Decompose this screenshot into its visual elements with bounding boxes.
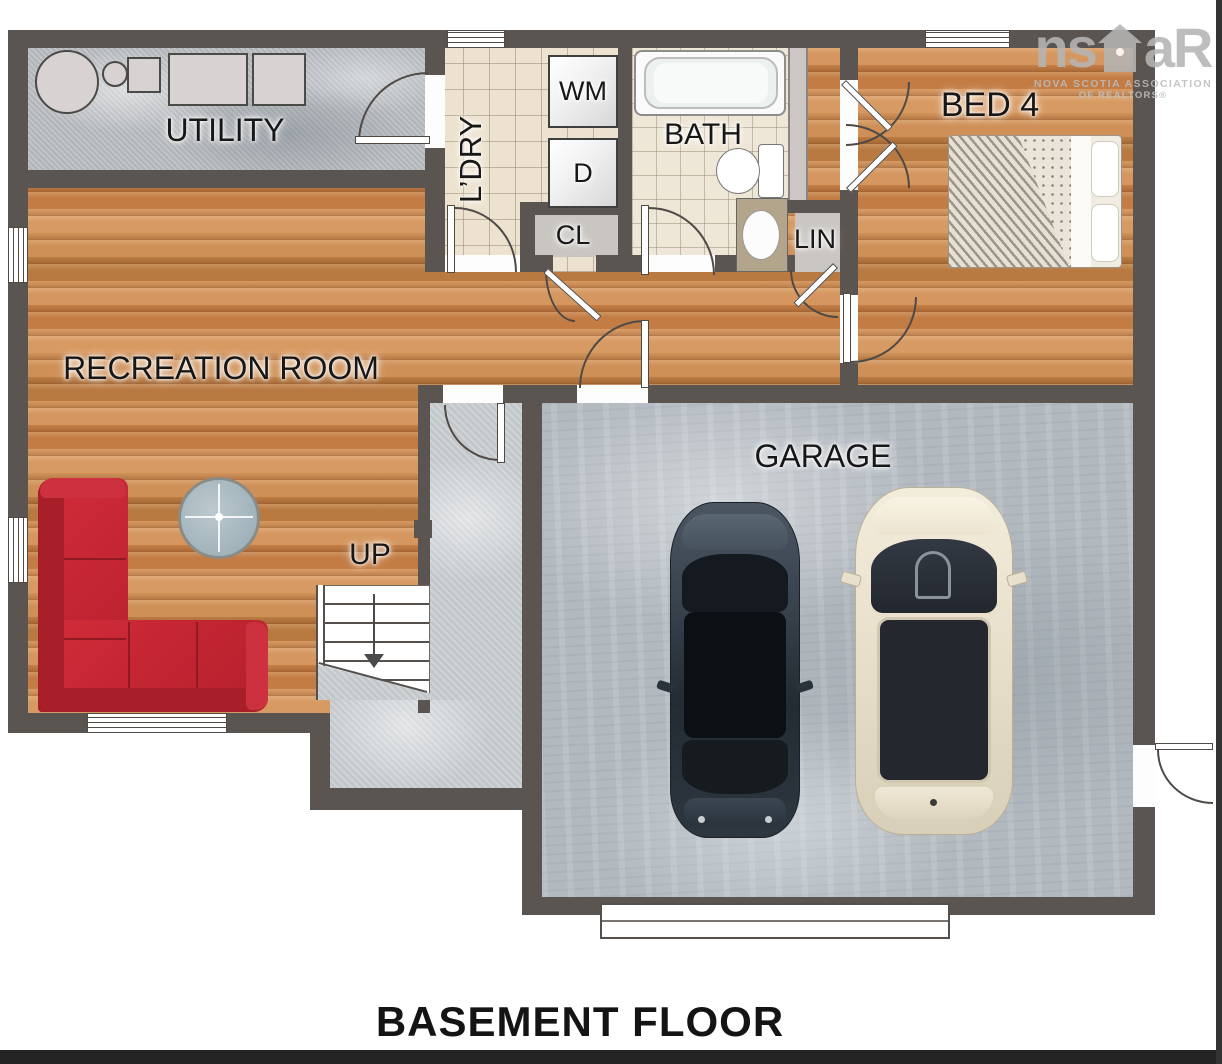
window xyxy=(447,30,505,48)
wall-laundry-bath xyxy=(618,48,632,272)
window xyxy=(87,713,227,733)
pillow xyxy=(1091,204,1119,262)
door-leaf xyxy=(497,403,505,463)
table-center xyxy=(215,513,223,521)
wall-stub xyxy=(414,520,432,538)
door-threshold xyxy=(1133,745,1155,807)
car-sedan xyxy=(670,502,800,838)
window xyxy=(925,30,1010,48)
door-threshold xyxy=(443,385,503,403)
coffee-table xyxy=(178,477,260,559)
window xyxy=(8,517,28,583)
car-sedan-headlight xyxy=(698,816,705,823)
car-sedan-rear-glass xyxy=(682,740,788,794)
sofa-back-bottom xyxy=(38,688,268,712)
wall-lin-top xyxy=(788,200,840,213)
sofa-armrest xyxy=(40,478,126,498)
wall-hall-bottom-b xyxy=(503,385,577,403)
sofa-back-left xyxy=(38,478,64,712)
door-swing xyxy=(1157,750,1213,804)
logo-subline-2: OF REALTORS® xyxy=(1028,90,1218,101)
bathtub xyxy=(634,50,786,116)
wall-utility-divider-b xyxy=(425,148,445,272)
car-suv-roof-glass xyxy=(877,617,991,783)
vanity xyxy=(736,198,788,272)
logo-text-ns: ns xyxy=(1035,22,1096,74)
window xyxy=(8,227,28,283)
room-garage xyxy=(542,403,1133,897)
car-suv-arch-icon xyxy=(915,551,951,599)
right-edge-bar xyxy=(1216,0,1222,1064)
logo-subline-1: NOVA SCOTIA ASSOCIATION xyxy=(1028,78,1218,90)
bathtub-basin xyxy=(654,63,768,103)
pillow xyxy=(1091,141,1119,197)
closet-label: CL xyxy=(543,220,603,251)
toilet-tank xyxy=(758,144,784,198)
bath-label: BATH xyxy=(648,118,758,152)
dryer-label: D xyxy=(573,158,593,189)
up-label: UP xyxy=(344,538,396,572)
wall-utility-bottom xyxy=(28,170,425,188)
door-leaf xyxy=(641,320,649,388)
page-title: BASEMENT FLOOR xyxy=(300,998,860,1046)
floor-plan-canvas: WM D xyxy=(0,0,1222,1064)
sink xyxy=(742,210,780,260)
stairs-arrow-shaft xyxy=(373,594,375,656)
bed-sheet-fold xyxy=(1071,136,1091,267)
wall-corridor-bottom xyxy=(310,788,542,810)
recreation-label: RECREATION ROOM xyxy=(46,350,396,387)
wall-garage-left xyxy=(522,385,542,915)
car-suv-hood xyxy=(873,497,995,535)
car-sedan-windshield xyxy=(682,554,788,612)
garage-door xyxy=(600,903,950,939)
bottom-bar xyxy=(0,1050,1222,1064)
stairs-arrow-head xyxy=(364,654,384,668)
wall-cl-stub-right xyxy=(596,255,632,272)
wall-hall-bottom-a xyxy=(418,385,443,403)
sofa-seam xyxy=(64,558,126,560)
wall-bed4-left-a xyxy=(840,48,858,80)
water-heater-tank xyxy=(35,50,99,114)
utility-equipment xyxy=(168,53,248,106)
door-leaf xyxy=(355,136,430,144)
door-leaf xyxy=(843,293,851,363)
washer-label: WM xyxy=(559,76,607,107)
door-leaf xyxy=(641,205,649,275)
car-suv-emblem xyxy=(930,799,937,806)
utility-pipe xyxy=(102,61,128,87)
door-leaf xyxy=(1155,743,1213,750)
wall-chase xyxy=(788,48,808,210)
utility-label: UTILITY xyxy=(120,112,330,149)
nsar-logo: ns aR NOVA SCOTIA ASSOCIATION OF REALTOR… xyxy=(1028,22,1218,101)
dryer: D xyxy=(548,138,618,208)
wall-right-upper xyxy=(1133,30,1155,745)
garage-label: GARAGE xyxy=(748,438,898,475)
car-sedan-headlight xyxy=(765,816,772,823)
toilet-bowl xyxy=(716,148,760,194)
logo-text-ar: aR xyxy=(1144,22,1212,74)
car-sedan-hood xyxy=(682,514,788,550)
wall-utility-divider-a xyxy=(425,48,445,75)
garage-door-line xyxy=(602,920,948,922)
wall-bed4-left-b xyxy=(840,190,858,295)
linen-label: LIN xyxy=(789,224,841,255)
car-sedan-roof xyxy=(684,612,786,738)
stair-landing xyxy=(330,700,522,788)
wall-hall-bottom-c xyxy=(648,385,1133,403)
wall-left xyxy=(8,30,28,733)
car-suv xyxy=(855,487,1013,835)
utility-box xyxy=(127,57,161,93)
laundry-label: L’DRY xyxy=(453,80,501,238)
washer: WM xyxy=(548,55,618,128)
sofa-seam xyxy=(128,622,130,688)
utility-equipment xyxy=(252,53,306,106)
sofa-seam xyxy=(64,638,126,640)
bed xyxy=(948,135,1122,268)
house-icon xyxy=(1097,24,1143,74)
sofa-armrest xyxy=(246,622,268,710)
sofa-seam xyxy=(196,622,198,688)
